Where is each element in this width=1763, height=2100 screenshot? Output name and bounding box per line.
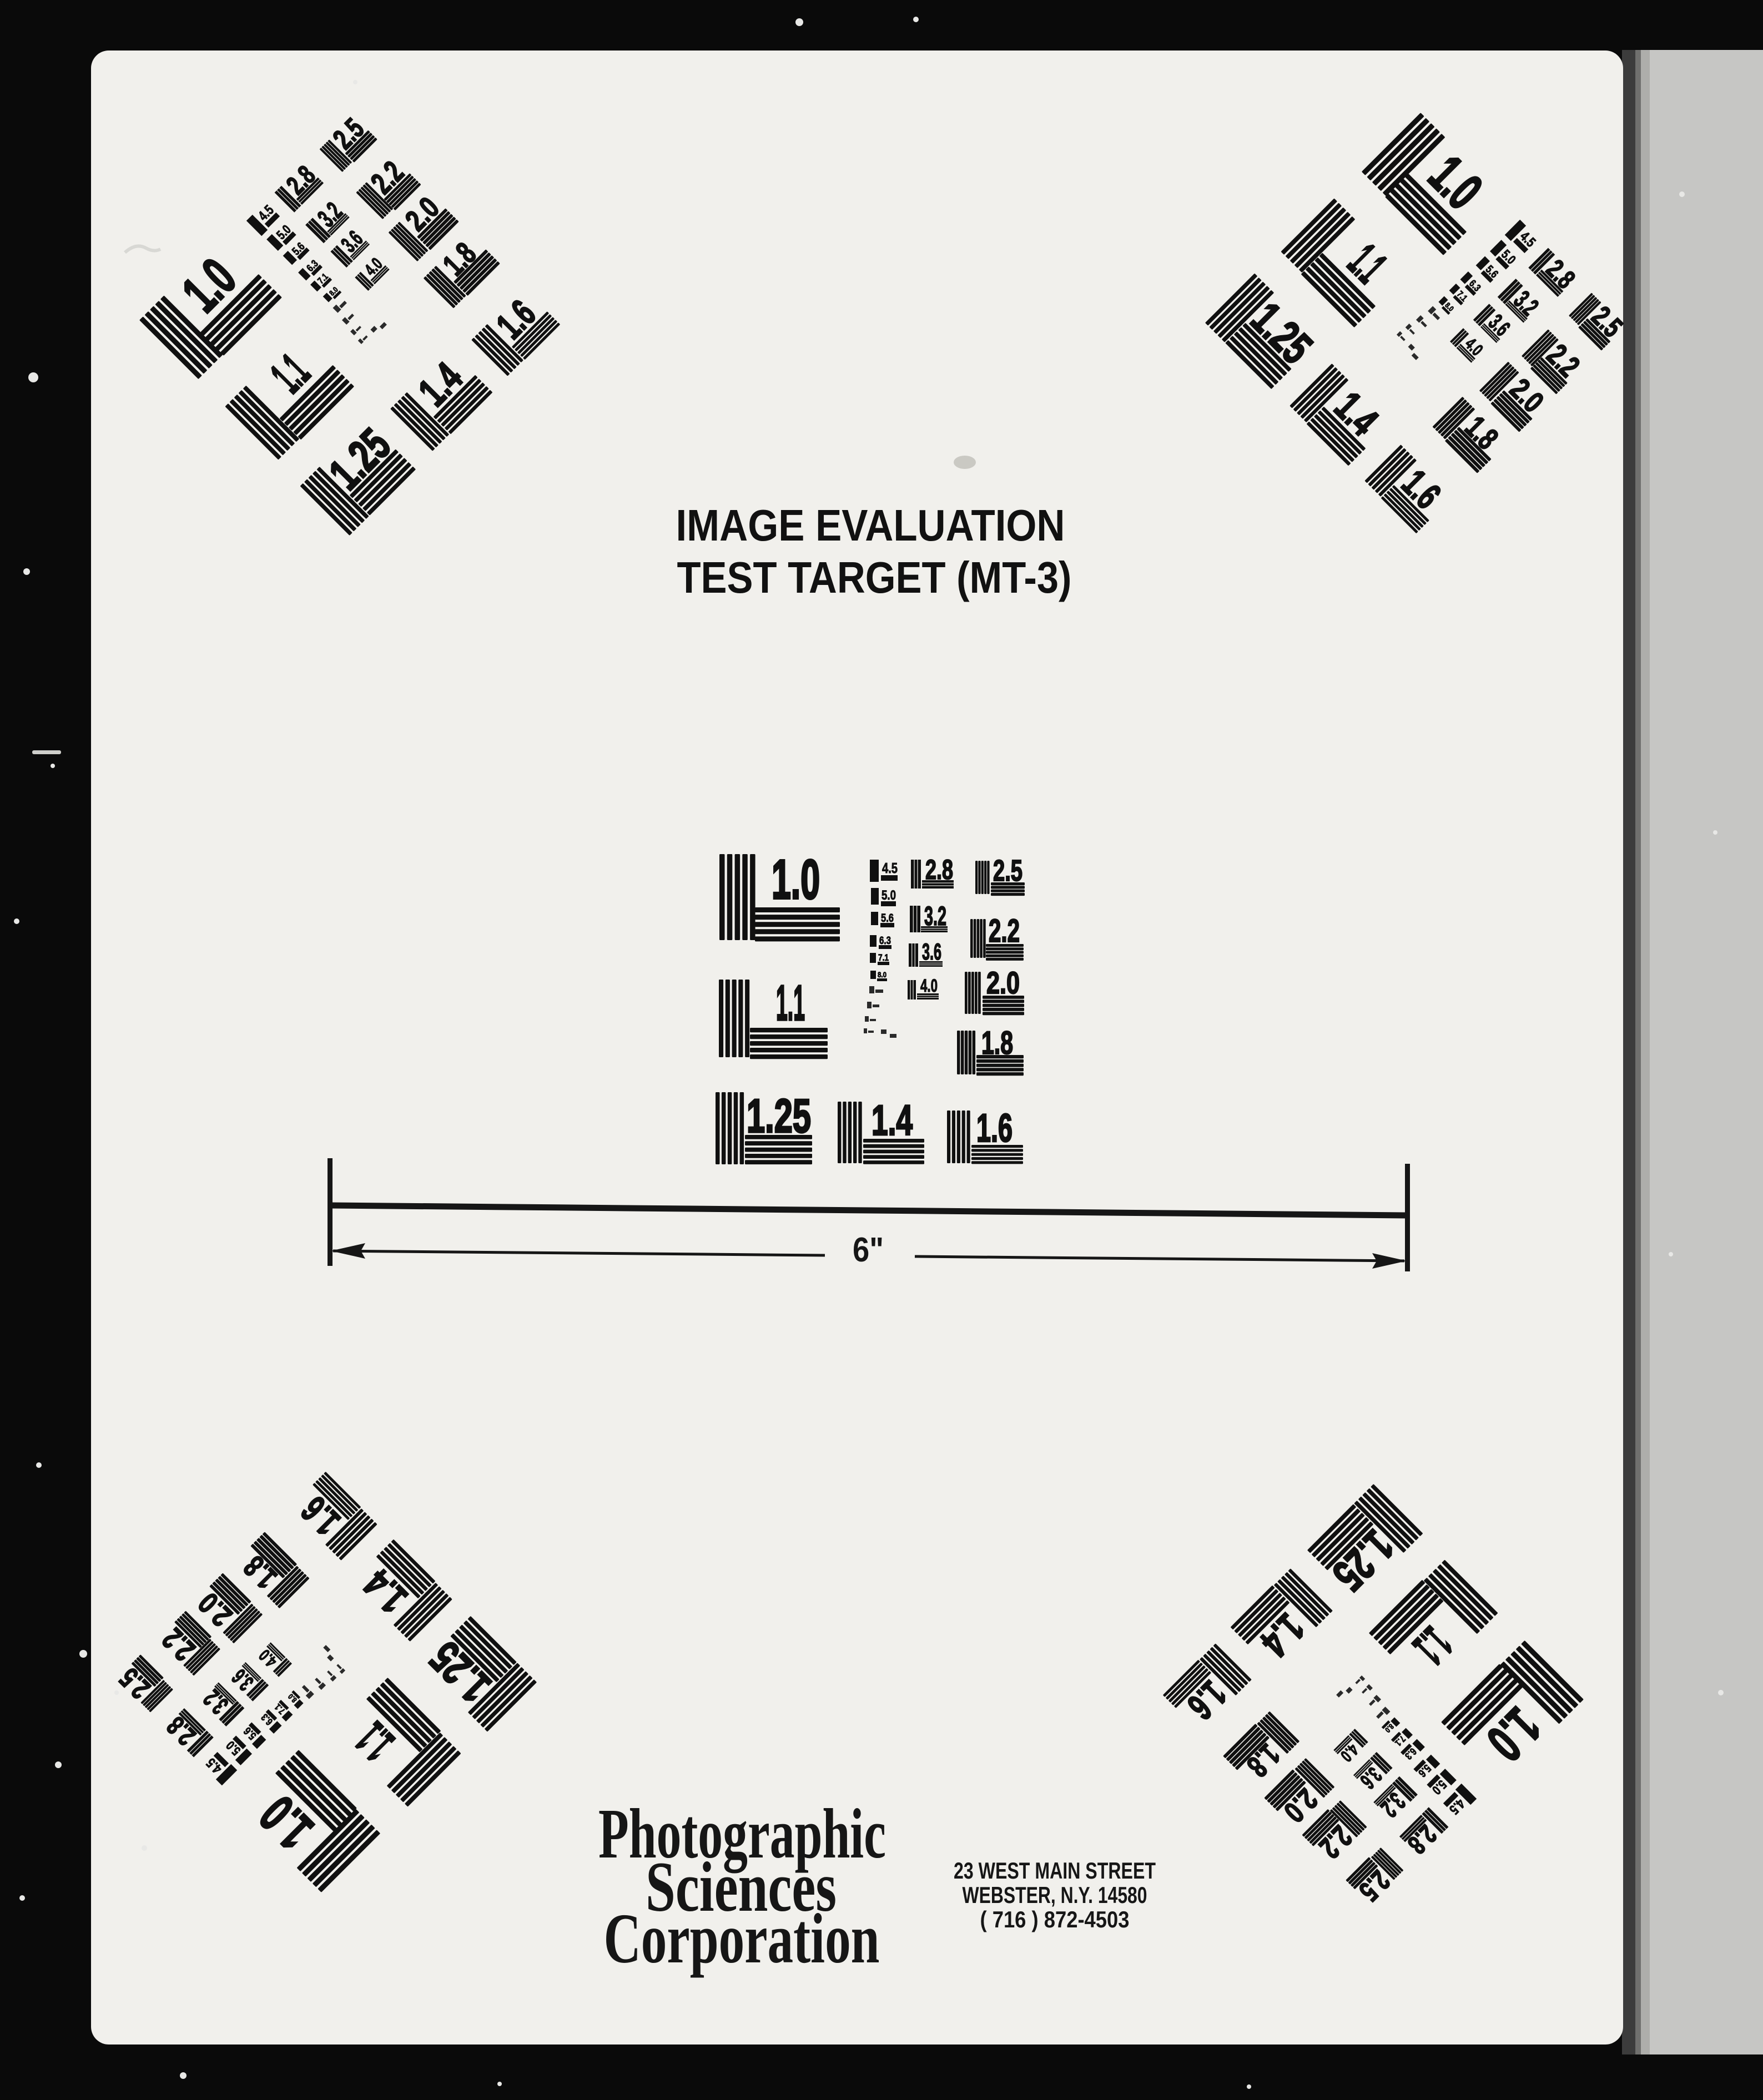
svg-text:Corporation: Corporation (604, 1899, 880, 1978)
svg-text:6": 6" (853, 1231, 884, 1269)
svg-text:6.3: 6.3 (879, 935, 891, 947)
svg-text:( 716 ) 872-4503: ( 716 ) 872-4503 (980, 1906, 1130, 1932)
svg-text:1.6: 1.6 (976, 1107, 1013, 1150)
svg-text:IMAGE EVALUATION: IMAGE EVALUATION (676, 501, 1065, 550)
svg-text:2.0: 2.0 (986, 965, 1020, 1000)
svg-text:1.25: 1.25 (747, 1090, 811, 1143)
svg-text:8.0: 8.0 (878, 970, 886, 979)
svg-text:7.1: 7.1 (878, 952, 889, 963)
svg-text:23 WEST MAIN STREET: 23 WEST MAIN STREET (954, 1857, 1156, 1884)
svg-text:1.1: 1.1 (776, 976, 805, 1031)
svg-text:TEST TARGET (MT-3): TEST TARGET (MT-3) (677, 553, 1072, 602)
svg-text:4.0: 4.0 (920, 976, 938, 996)
svg-text:2.2: 2.2 (989, 913, 1020, 949)
svg-text:3.6: 3.6 (922, 938, 941, 965)
svg-text:4.5: 4.5 (882, 860, 898, 876)
svg-text:5.6: 5.6 (881, 912, 894, 925)
svg-text:1.4: 1.4 (872, 1097, 913, 1144)
svg-text:WEBSTER, N.Y. 14580: WEBSTER, N.Y. 14580 (963, 1882, 1147, 1908)
svg-text:5.0: 5.0 (881, 888, 896, 903)
svg-text:1.0: 1.0 (772, 849, 820, 911)
